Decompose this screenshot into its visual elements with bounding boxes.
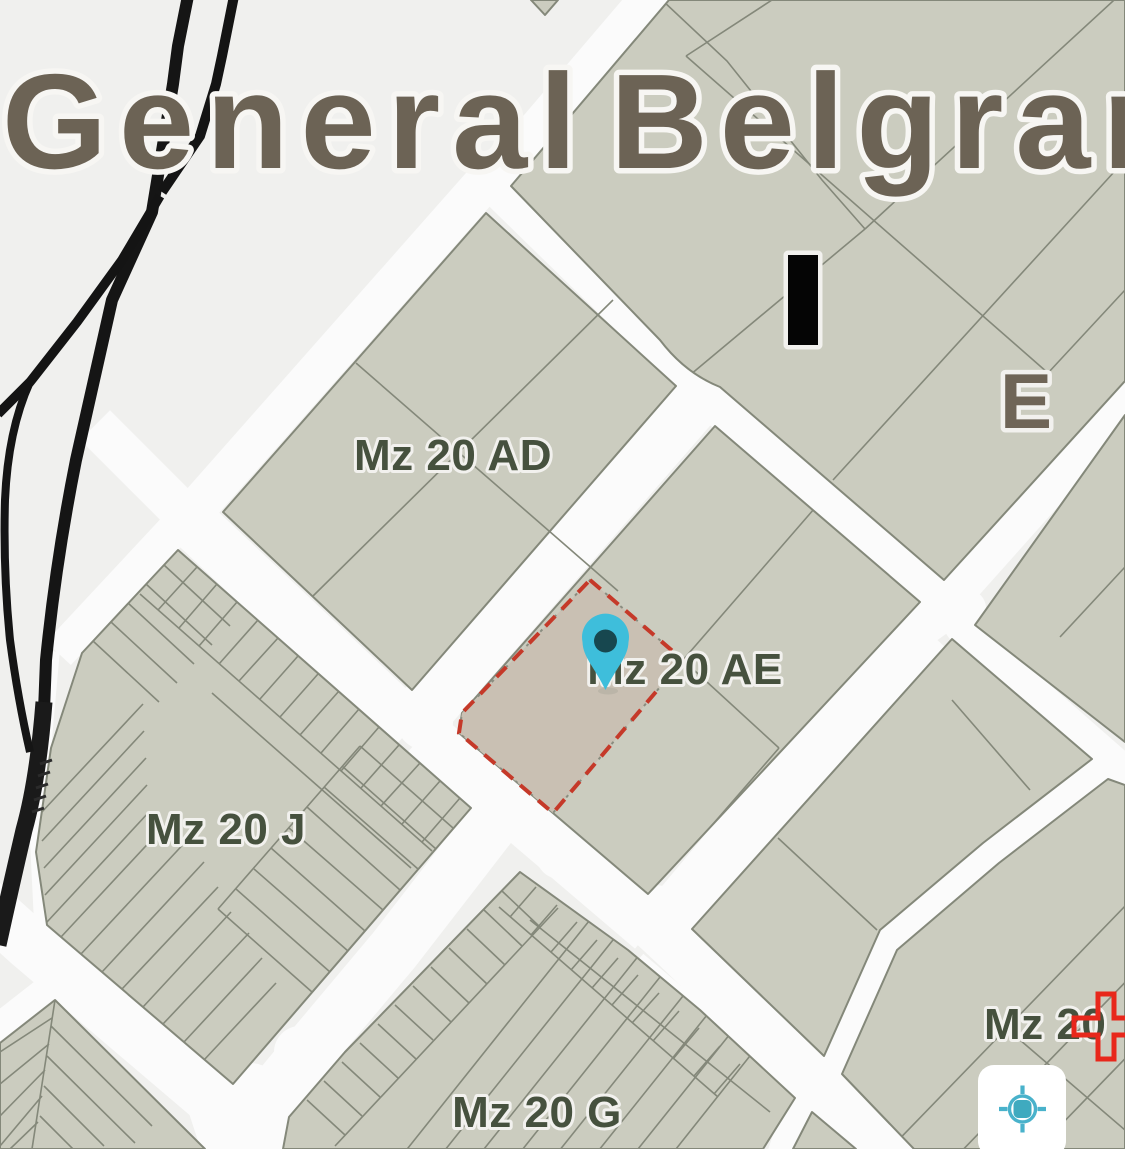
- svg-text:E: E: [1000, 357, 1052, 445]
- svg-text:Mz 20: Mz 20: [984, 1000, 1106, 1049]
- svg-text:Mz 20 AD: Mz 20 AD: [354, 431, 552, 480]
- svg-text:General Belgrano: General Belgrano: [2, 46, 1125, 197]
- svg-text:Mz 20 G: Mz 20 G: [452, 1088, 622, 1137]
- svg-text:Mz 20 J: Mz 20 J: [146, 805, 306, 854]
